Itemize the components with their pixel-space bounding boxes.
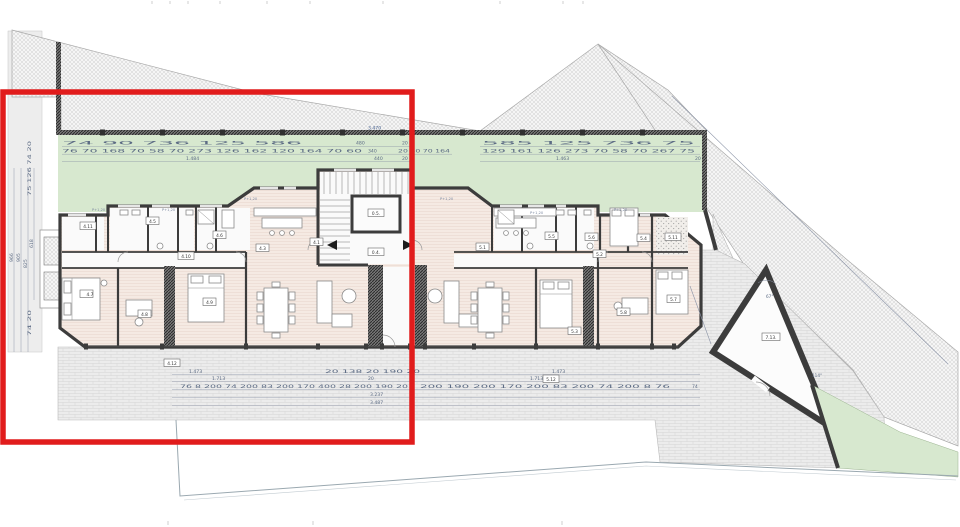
svg-text:4.8: 4.8: [141, 312, 148, 318]
dim-top-b-right: 129 161 126 273 70 58 70 267 75: [482, 149, 695, 155]
bed-5-3: [540, 280, 572, 328]
svg-text:7.13.: 7.13.: [766, 335, 777, 341]
terrace-side-wall: [702, 132, 707, 210]
svg-text:4.3: 4.3: [259, 246, 266, 252]
dim-left-v-top: 75 126 74 20: [27, 141, 33, 196]
dim-top-b-left: 76 70 168 70 58 70 273 126 162 120 164 7…: [62, 149, 362, 155]
dim-b-mid2: 20: [368, 376, 374, 382]
svg-text:0.5.: 0.5.: [372, 211, 380, 217]
nightstand: [101, 280, 107, 286]
bed-5-5: [610, 208, 638, 246]
dim-b3: 3.237: [370, 392, 383, 398]
dim-top-c-mid: 440: [374, 156, 383, 162]
core-flank-wall-right: [415, 265, 427, 347]
bed-5-7: [656, 270, 688, 314]
parapet-note-6: P+1,20: [614, 208, 628, 212]
svg-text:5.2: 5.2: [596, 252, 603, 258]
dim-top-a-left: 74 90 736 125 586: [62, 141, 302, 147]
svg-text:5.11: 5.11: [668, 235, 678, 241]
svg-text:4.1: 4.1: [313, 240, 320, 246]
retaining-wall: [56, 42, 61, 132]
svg-text:4.6: 4.6: [216, 233, 223, 239]
room-label-5-1: 5.1: [476, 243, 489, 251]
terrace-parapet-wall: [56, 130, 707, 135]
parapet-note-5: P+1,20: [530, 211, 544, 215]
room-label-5-12: 5.12: [543, 375, 559, 383]
room-label-5-7: 5.7: [667, 295, 680, 303]
angle-note-bottom: 114°: [812, 373, 822, 378]
dim-b1r: 1.473: [552, 369, 565, 375]
svg-text:4.9: 4.9: [206, 300, 213, 306]
dim-top-c-right: 1.463: [556, 156, 569, 162]
dim-b-mid: 20 138 20 190 20: [325, 369, 420, 375]
dim-left-v3: 825: [23, 259, 29, 268]
dim-top-a-right: 585 125 736 75: [482, 141, 695, 147]
dim-top-b-mid2: 20 40 70 164: [398, 149, 450, 155]
angle-note-top: 67°: [766, 294, 773, 299]
room-label-4-10: 4.10: [178, 252, 194, 260]
dim-left-v2: 905: [16, 253, 22, 262]
dim-left-v-bot: 74 20: [27, 310, 33, 336]
room-label-4-3: 4.3: [256, 244, 269, 252]
coffee-table-left: [342, 289, 356, 303]
room-label-4-6: 4.6: [213, 231, 226, 239]
floor-plan-canvas: 74 90 736 125 586 480 20 76 70 168 70 58…: [0, 0, 960, 527]
room-label-5-2: 5.2: [593, 250, 606, 258]
room-label-5-4: 5.4: [637, 234, 650, 242]
room-label-5-11: 5.11: [665, 233, 681, 241]
bed-4-7: [62, 278, 100, 320]
dim-b-end: 74: [692, 384, 698, 390]
room-label-5-5: 5.5: [545, 232, 558, 240]
dim-b-detail-left: 76 8 200 74 200 83 200 170 400 28 200 19…: [180, 384, 408, 390]
dim-left-v4: 618: [29, 239, 35, 248]
dim-top-b-mid: 340: [368, 149, 377, 155]
parapet-note-4: P+1,20: [440, 197, 454, 201]
room-label-4-8: 4.8: [138, 310, 151, 318]
dim-top-c-right-end: 20: [695, 156, 701, 162]
dim-b1: 1.473: [189, 369, 202, 375]
parapet-note-2: P+1,20: [162, 208, 176, 212]
svg-text:4.10: 4.10: [181, 254, 191, 260]
dim-top-a-end: 20: [402, 141, 408, 147]
svg-text:4.11: 4.11: [83, 224, 93, 230]
room-label-4-1: 4.1: [310, 238, 323, 246]
dim-b-detail-right: 200 190 200 170 200 83 200 74 200 8 76: [420, 384, 670, 390]
dim-top-c-left: 1.484: [186, 156, 199, 162]
svg-text:4.12: 4.12: [167, 361, 177, 367]
dim-left-v1: 966: [9, 253, 15, 262]
wardrobe-wall-right: [583, 266, 594, 346]
svg-text:5.3: 5.3: [571, 329, 578, 335]
coffee-table-right: [428, 289, 442, 303]
terrain-hatch-upper: [12, 30, 706, 135]
svg-text:5.4: 5.4: [640, 236, 647, 242]
core-flank-wall-left: [368, 265, 383, 347]
svg-text:4.5: 4.5: [149, 219, 156, 225]
svg-text:0.4.: 0.4.: [372, 250, 380, 256]
dim-b2r: 1.713: [530, 376, 543, 382]
room-label-4-12: 4.12: [164, 359, 180, 367]
room-label-0-4: 0.4.: [368, 248, 384, 256]
room-label-5-6: 5.6: [585, 233, 598, 241]
parapet-note-3: P+1,20: [244, 197, 258, 201]
svg-text:5.1: 5.1: [479, 245, 486, 251]
room-label-4-7: 4.7: [80, 290, 94, 298]
dim-b4: 3.487: [370, 400, 383, 406]
parapet-note-1: P+1,20: [92, 208, 106, 212]
svg-text:5.5: 5.5: [548, 234, 555, 240]
room-label-4-5: 4.5: [146, 217, 159, 225]
wardrobe-wall-left: [164, 266, 175, 346]
room-label-0-5: 0.5.: [368, 209, 384, 217]
room-label-5-3: 5.3: [568, 327, 581, 335]
svg-text:5.12: 5.12: [546, 377, 556, 383]
dim-top-c-end: 20: [402, 156, 408, 162]
site-plan-drawing: 74 90 736 125 586 480 20 76 70 168 70 58…: [0, 0, 960, 527]
room-label-7-13: 7.13.: [762, 333, 780, 341]
svg-text:5.7: 5.7: [670, 297, 677, 303]
svg-text:5.6: 5.6: [588, 235, 595, 241]
room-label-4-11: 4.11: [80, 222, 96, 230]
svg-text:4.7: 4.7: [87, 292, 94, 298]
room-label-4-9: 4.9: [203, 298, 216, 306]
svg-text:5.8: 5.8: [620, 310, 627, 316]
dim-b2: 1.713: [212, 376, 225, 382]
dim-wall-total: 3.470: [368, 126, 381, 132]
room-label-5-8: 5.8: [617, 308, 630, 316]
dim-top-a-mid: 480: [356, 141, 365, 147]
